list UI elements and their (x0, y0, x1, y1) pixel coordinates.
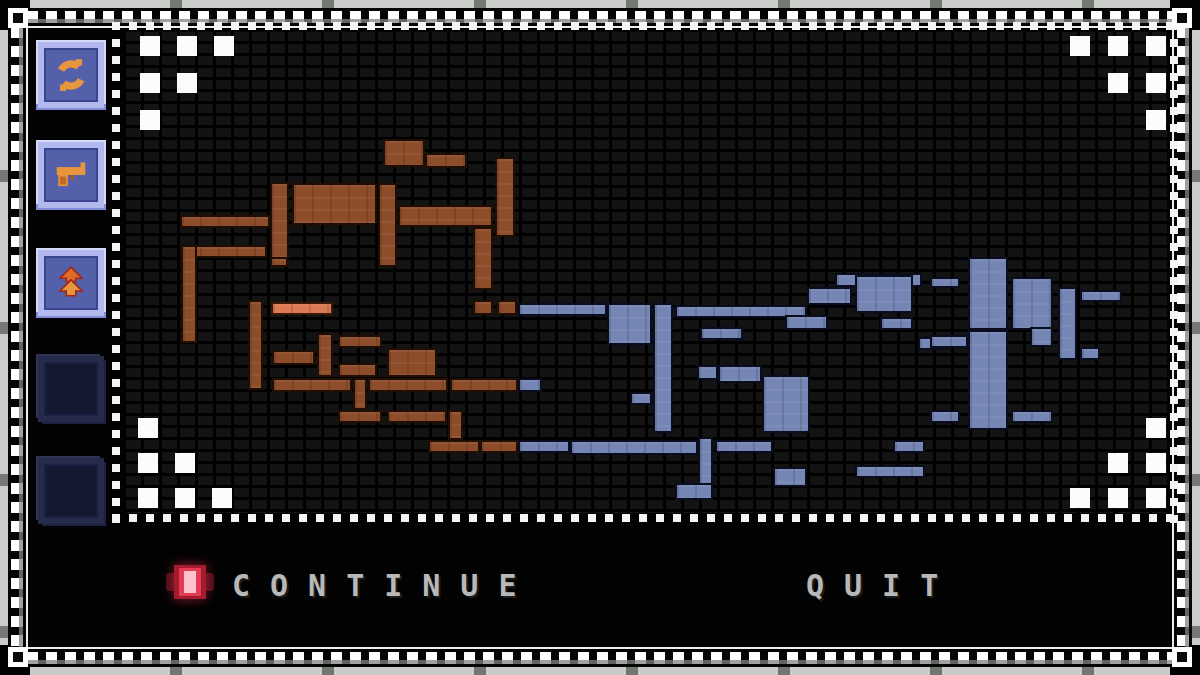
map-room-blue (930, 277, 960, 288)
map-room-blue (1058, 287, 1077, 360)
map-room-blue (630, 392, 652, 405)
outer-edge-top (30, 0, 1170, 8)
map-corner-marker-top-left (140, 36, 160, 56)
map-room-blue (807, 287, 852, 305)
map-room-brown (480, 440, 518, 453)
map-room-brown (338, 363, 377, 377)
continue-button[interactable]: CONTINUE (232, 568, 537, 603)
map-corner-marker-bottom-right (1146, 418, 1166, 438)
map-room-brown (473, 227, 493, 290)
map-room-blue (718, 365, 762, 383)
map-corner-marker-top-left (140, 110, 160, 130)
map-corner-marker-bottom-right (1070, 488, 1090, 508)
map-grid (126, 32, 1168, 513)
map-dashed-border-top (112, 22, 1178, 30)
map-dashed-border-right (1170, 22, 1178, 526)
map-corner-marker-bottom-left (212, 488, 232, 508)
map-corner-marker-top-right (1146, 110, 1166, 130)
map-corner-marker-top-left (177, 36, 197, 56)
map-room-blue (1080, 347, 1100, 360)
quit-button[interactable]: QUIT (806, 568, 958, 603)
map-dashed-border-left (112, 22, 120, 526)
map-room-blue (968, 257, 1008, 330)
map-room-brown (368, 378, 448, 392)
map-room-brown (353, 378, 367, 410)
sprocket-holes (8, 652, 1192, 664)
map-room-brown (292, 183, 377, 225)
map-room-blue (785, 315, 828, 330)
map-room-brown (495, 157, 515, 237)
map-room-blue (893, 440, 925, 453)
map-corner-marker-bottom-left (138, 453, 158, 473)
outer-edge-bottom (30, 667, 1170, 675)
map-room-brown (448, 410, 463, 440)
film-border-left (8, 8, 28, 667)
map-panel (110, 20, 1180, 528)
item-slot-3[interactable] (38, 250, 104, 316)
map-room-blue (653, 303, 673, 433)
map-corner-marker-bottom-left (138, 488, 158, 508)
frame-corner (8, 647, 28, 667)
map-room-blue (855, 465, 925, 478)
map-room-blue (715, 440, 773, 453)
map-corner-marker-bottom-left (175, 488, 195, 508)
map-corner-marker-bottom-right (1146, 488, 1166, 508)
map-room-brown (338, 335, 382, 348)
map-room-blue (930, 410, 960, 423)
map-room-brown (181, 245, 197, 343)
item-slot-2[interactable] (38, 142, 104, 208)
map-room-blue (697, 365, 718, 380)
map-room-brown (387, 348, 437, 377)
item-slot-5[interactable] (38, 458, 104, 524)
film-border-bottom (8, 647, 1192, 667)
item-slot-4[interactable] (38, 356, 104, 422)
map-corner-marker-top-right (1070, 36, 1090, 56)
map-room-brown (180, 215, 270, 228)
map-room-brown (270, 257, 288, 267)
map-dashed-border-bottom (112, 514, 1178, 522)
double-chevron-up-icon (52, 264, 90, 302)
map-room-blue (698, 437, 713, 487)
map-room-blue (880, 317, 913, 330)
map-corner-marker-top-left (177, 73, 197, 93)
map-room-brown (378, 183, 397, 267)
map-corner-marker-top-right (1146, 36, 1166, 56)
map-room-brown (338, 410, 382, 423)
map-room-brown (383, 139, 425, 167)
map-room-blue (1011, 410, 1053, 423)
map-room-blue (518, 303, 607, 316)
map-corner-marker-bottom-right (1108, 453, 1128, 473)
map-room-brown (425, 153, 467, 168)
map-room-blue (855, 275, 913, 313)
outer-edge-right (1192, 30, 1200, 645)
map-room-blue (570, 440, 698, 455)
pistol-icon (52, 156, 90, 194)
map-room-blue (675, 483, 713, 500)
map-room-blue (762, 375, 810, 433)
map-room-brown (497, 300, 517, 315)
map-corner-marker-top-right (1108, 73, 1128, 93)
map-room-blue (518, 378, 542, 392)
frame-corner (1172, 8, 1192, 28)
map-room-blue (518, 440, 570, 453)
map-room-brown (272, 378, 352, 392)
map-room-blue (930, 335, 968, 348)
map-room-brown (398, 205, 493, 227)
map-room-brown (248, 300, 263, 390)
map-room-brown (270, 182, 289, 267)
map-corner-marker-top-left (214, 36, 234, 56)
outer-edge-left (0, 30, 8, 645)
map-room-blue (700, 327, 743, 340)
map-room-brown (450, 378, 518, 392)
map-corner-marker-bottom-right (1108, 488, 1128, 508)
map-room-blue (607, 303, 652, 345)
frame-corner (8, 8, 28, 28)
map-room-brown (428, 440, 480, 453)
map-room-blue (968, 330, 1008, 430)
frame-corner (1172, 647, 1192, 667)
map-corner-marker-top-right (1108, 36, 1128, 56)
map-room-blue (773, 467, 807, 487)
selection-gem-cursor (166, 562, 214, 602)
map-corner-marker-top-right (1146, 73, 1166, 93)
map-room-brown (473, 300, 493, 315)
circular-arrows-icon (52, 56, 90, 94)
map-corner-marker-bottom-left (175, 453, 195, 473)
map-corner-marker-top-left (140, 73, 160, 93)
game-screen: CONTINUE QUIT (0, 0, 1200, 675)
map-corner-marker-bottom-right (1146, 453, 1166, 473)
map-room-current (271, 302, 333, 315)
map-room-brown (272, 350, 315, 365)
map-room-brown (317, 333, 333, 377)
map-room-blue (1080, 290, 1122, 302)
item-slot-1[interactable] (38, 42, 104, 108)
sprocket-holes (11, 8, 23, 667)
map-corner-marker-bottom-left (138, 418, 158, 438)
map-room-blue (1011, 277, 1053, 330)
map-room-blue (1030, 327, 1053, 347)
map-room-brown (387, 410, 447, 423)
